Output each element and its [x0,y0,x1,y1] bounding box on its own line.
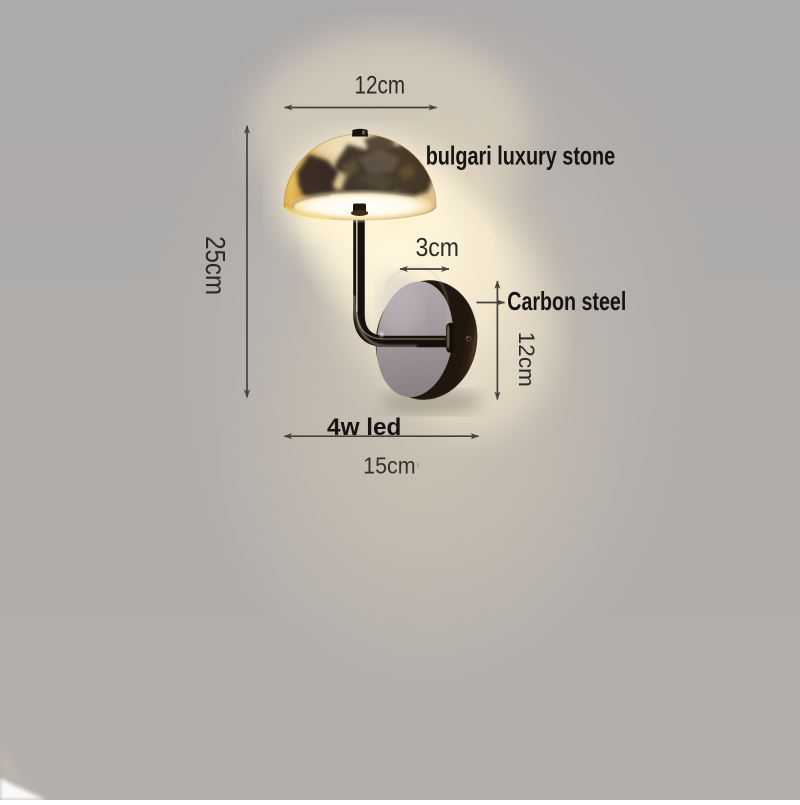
svg-text:12cm: 12cm [514,332,539,387]
svg-text:bulgari luxury stone: bulgari luxury stone [426,141,616,171]
svg-text:25cm: 25cm [200,236,231,295]
svg-text:12cm: 12cm [355,71,406,99]
svg-text:15cm: 15cm [363,453,416,479]
svg-text:3cm: 3cm [415,232,459,262]
svg-text:Carbon steel: Carbon steel [507,286,626,316]
